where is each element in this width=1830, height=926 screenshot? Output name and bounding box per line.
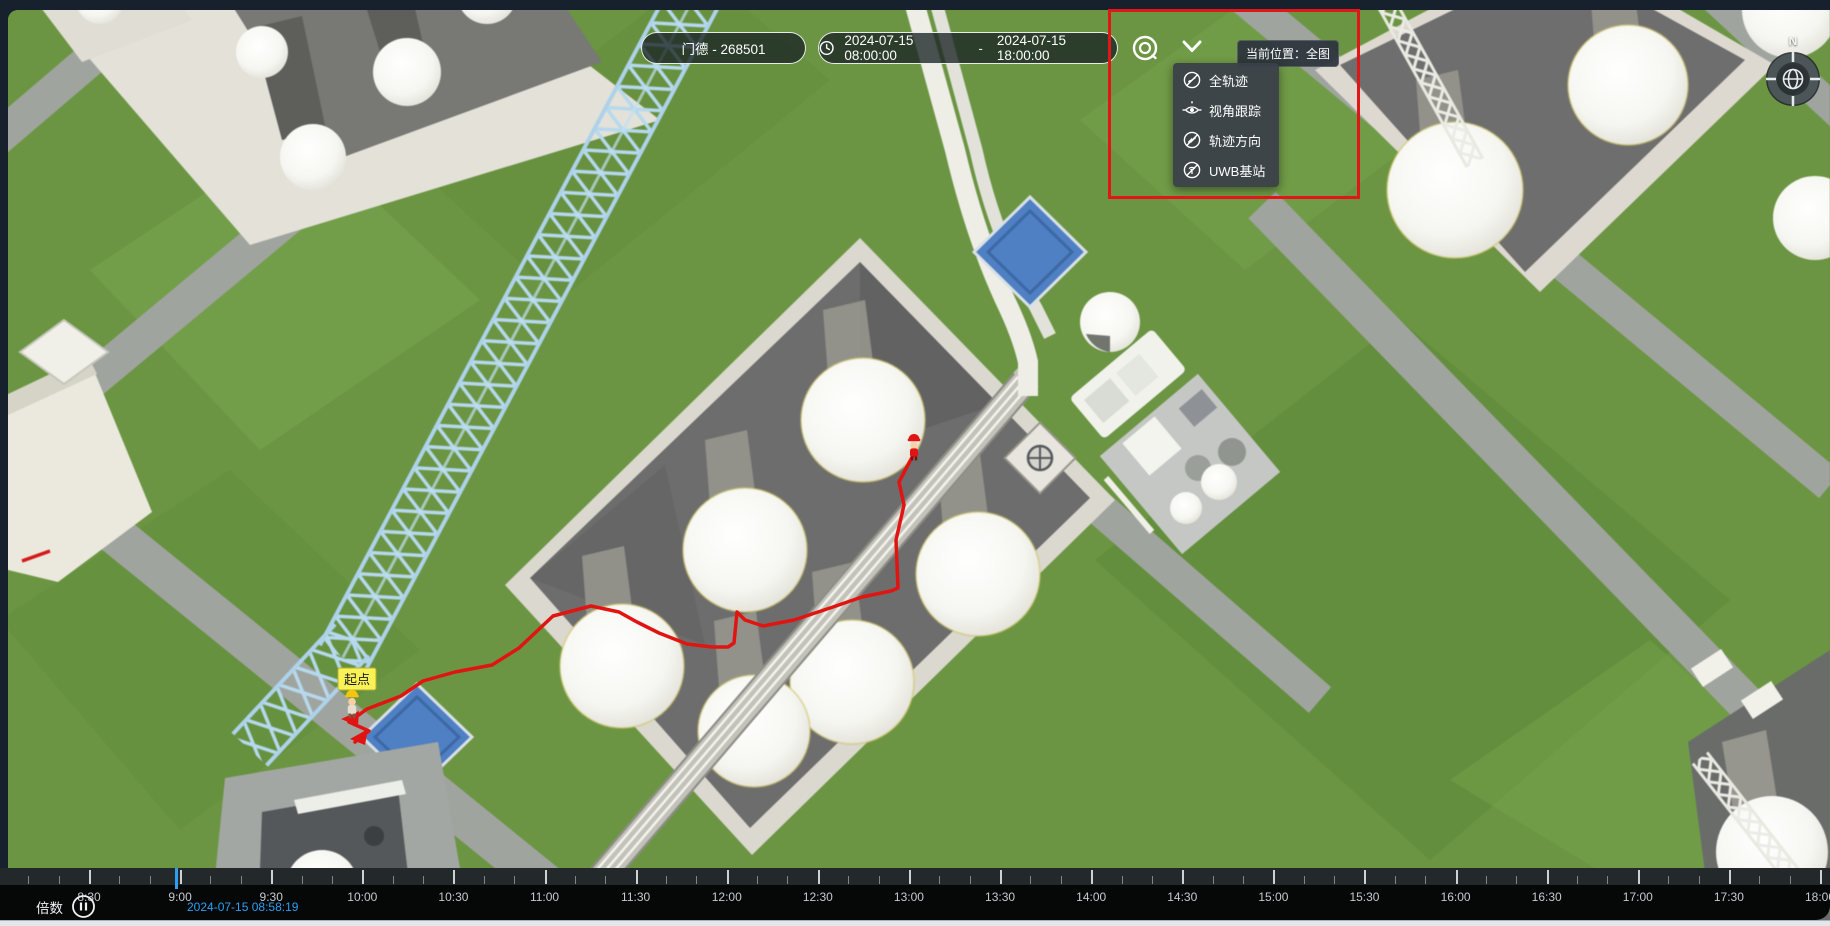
- timeline-tick: [1790, 876, 1791, 884]
- timeline-tick: [241, 876, 242, 884]
- timeline-label: 11:00: [530, 890, 559, 904]
- timeline-tick: [1030, 876, 1031, 884]
- menu-item-label: UWB基站: [1209, 161, 1265, 180]
- timeline-tick: [1577, 876, 1578, 884]
- trajectory-path: [349, 452, 915, 742]
- timeline-tick: [1425, 876, 1426, 884]
- timeline-tick: [1000, 870, 1002, 884]
- timeline-tick: [545, 870, 547, 884]
- view-follow-icon: [1182, 100, 1202, 120]
- timeline-tick: [848, 876, 849, 884]
- timeline-label: 12:30: [803, 890, 833, 904]
- clock-icon: [819, 40, 834, 56]
- timeline-label: 10:00: [347, 890, 377, 904]
- timeline-tick: [484, 876, 485, 884]
- timeline-tick: [180, 870, 182, 884]
- layers-menu: 全轨迹 视角跟踪 轨迹方向: [1173, 63, 1279, 187]
- trajectory-direction-icon: [1182, 130, 1202, 150]
- timeline-tick: [393, 876, 394, 884]
- time-range-end: 2024-07-15 18:00:00: [997, 33, 1117, 63]
- timeline-tick: [757, 876, 758, 884]
- timeline-tick: [59, 876, 60, 884]
- timeline-tick: [605, 876, 606, 884]
- menu-item-label: 全轨迹: [1209, 71, 1248, 90]
- trajectory-arrow: [350, 729, 368, 745]
- timeline-tick: [818, 870, 820, 884]
- timeline-tick: [1456, 870, 1458, 884]
- timeline-tick: [1759, 876, 1760, 884]
- timeline-tick: [28, 876, 29, 884]
- speed-label: 倍数: [36, 897, 63, 917]
- timeline-tick: [636, 870, 638, 884]
- menu-item-label: 轨迹方向: [1209, 131, 1261, 150]
- timeline-tick: [1638, 870, 1640, 884]
- timeline-tick: [453, 870, 455, 884]
- timeline-playhead[interactable]: [175, 868, 178, 889]
- map-viewport[interactable]: 起点: [8, 10, 1830, 926]
- timeline-label: 14:00: [1076, 890, 1106, 904]
- chevron-down-icon: [1182, 40, 1202, 53]
- timeline-tick: [1364, 870, 1366, 884]
- time-range-picker[interactable]: 2024-07-15 08:00:00 - 2024-07-15 18:00:0…: [818, 32, 1118, 64]
- timeline-tick: [1182, 870, 1184, 884]
- timeline-label: 14:30: [1167, 890, 1197, 904]
- uwb-station-icon: [1182, 160, 1202, 180]
- timeline-tick: [1061, 876, 1062, 884]
- timeline-tick: [89, 870, 91, 884]
- timeline-tick: [1668, 876, 1669, 884]
- timeline-label: 17:30: [1714, 890, 1744, 904]
- timeline-tick: [119, 876, 120, 884]
- target-select-label: 门德 - 268501: [681, 38, 765, 58]
- timeline-tick: [150, 876, 151, 884]
- end-marker: [908, 434, 921, 460]
- timeline-tick: [1486, 876, 1487, 884]
- timeline-tick: [666, 876, 667, 884]
- tracking-app-screen: 起点 门德 - 268501 2024: [0, 0, 1830, 926]
- timeline-tick: [970, 876, 971, 884]
- timeline-tick: [514, 876, 515, 884]
- locate-button[interactable]: [1128, 31, 1162, 65]
- timeline-label: 16:00: [1441, 890, 1471, 904]
- timeline-tick: [1516, 876, 1517, 884]
- timeline-tick: [1334, 876, 1335, 884]
- timeline-tick: [1213, 876, 1214, 884]
- menu-item-view-follow[interactable]: 视角跟踪: [1173, 95, 1279, 125]
- timeline-label: 16:30: [1532, 890, 1562, 904]
- timeline-label: 17:00: [1623, 890, 1653, 904]
- timeline-tick: [1547, 870, 1549, 884]
- target-select[interactable]: 门德 - 268501: [641, 32, 806, 64]
- pause-button[interactable]: [71, 894, 96, 919]
- menu-item-label: 视角跟踪: [1209, 101, 1261, 120]
- timeline-label: 12:00: [712, 890, 742, 904]
- timeline-label: 18:00: [1805, 890, 1830, 904]
- timeline-tick: [302, 876, 303, 884]
- window-bottom-edge: [0, 920, 1830, 926]
- timeline-tick: [1091, 870, 1093, 884]
- timeline-tick: [1820, 870, 1822, 884]
- timeline-tick: [1273, 870, 1275, 884]
- timeline-tick: [787, 876, 788, 884]
- timeline-tick: [879, 876, 880, 884]
- timeline-ruler[interactable]: [0, 868, 1830, 885]
- timeline-label: 11:30: [621, 890, 650, 904]
- timeline-label: 10:30: [438, 890, 468, 904]
- layers-dropdown-toggle[interactable]: [1182, 40, 1202, 53]
- timeline-tick: [909, 870, 911, 884]
- timeline-label: 15:00: [1258, 890, 1288, 904]
- timeline-tick: [210, 876, 211, 884]
- compass-north-label: N: [1762, 34, 1824, 48]
- menu-item-full-trajectory[interactable]: 全轨迹: [1173, 65, 1279, 95]
- timeline-tick: [696, 876, 697, 884]
- start-label-text: 起点: [344, 672, 370, 687]
- time-range-separator: -: [978, 41, 983, 56]
- timeline-tick: [362, 870, 364, 884]
- menu-item-uwb-station[interactable]: UWB基站: [1173, 155, 1279, 185]
- timeline-label: 13:00: [894, 890, 924, 904]
- timeline-tick: [271, 870, 273, 884]
- compass-icon: [1763, 49, 1823, 109]
- timeline-tick: [939, 876, 940, 884]
- compass[interactable]: N: [1762, 34, 1824, 114]
- timeline-tick: [1607, 876, 1608, 884]
- timeline-tick: [1152, 876, 1153, 884]
- start-label: 起点: [338, 668, 376, 690]
- timeline-tick: [1243, 876, 1244, 884]
- locate-icon: [1128, 31, 1162, 65]
- timeline-label: 13:30: [985, 890, 1015, 904]
- playback-speed: 倍数: [36, 894, 96, 919]
- trajectory-overlay: 起点: [8, 10, 1830, 926]
- timeline-tick: [575, 876, 576, 884]
- timeline-tick: [1729, 870, 1731, 884]
- trajectory-icon: [1182, 70, 1202, 90]
- timeline-bar[interactable]: 8:309:009:3010:0010:3011:0011:3012:0012:…: [0, 868, 1830, 920]
- timeline-tick: [1304, 876, 1305, 884]
- timeline-tick: [727, 870, 729, 884]
- menu-item-trajectory-direction[interactable]: 轨迹方向: [1173, 125, 1279, 155]
- timeline-tick: [423, 876, 424, 884]
- current-time-readout: 2024-07-15 08:58:19: [187, 900, 298, 914]
- timeline-tick: [1699, 876, 1700, 884]
- timeline-label: 15:30: [1349, 890, 1379, 904]
- timeline-tick: [1395, 876, 1396, 884]
- time-range-start: 2024-07-15 08:00:00: [844, 33, 964, 63]
- timeline-tick: [332, 876, 333, 884]
- timeline-tick: [1122, 876, 1123, 884]
